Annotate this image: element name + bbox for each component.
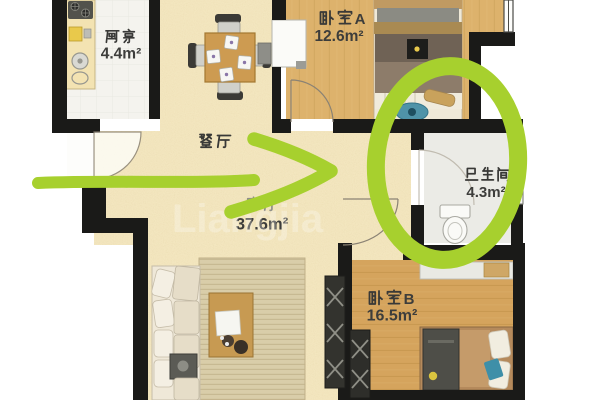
svg-text:16.5m²: 16.5m² bbox=[367, 308, 418, 325]
svg-text:12.6m²: 12.6m² bbox=[314, 28, 363, 45]
svg-text:4.4m²: 4.4m² bbox=[101, 46, 142, 63]
svg-text:A: A bbox=[355, 11, 366, 28]
svg-text:4.3m²: 4.3m² bbox=[466, 184, 505, 201]
svg-text:B: B bbox=[404, 291, 415, 308]
